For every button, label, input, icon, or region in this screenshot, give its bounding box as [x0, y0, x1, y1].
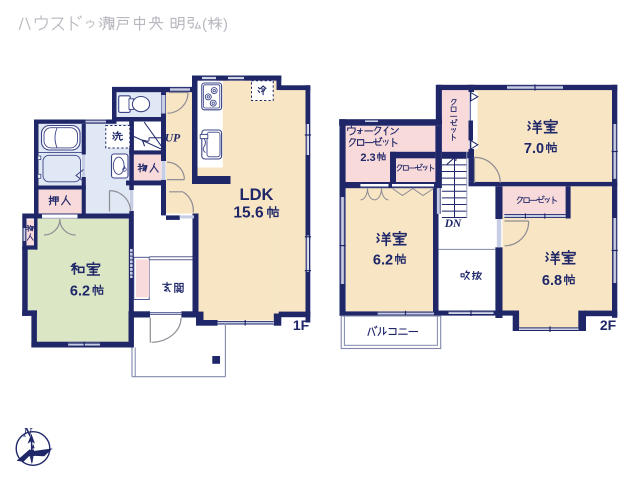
svg-text:LDK: LDK	[240, 186, 274, 204]
svg-text:7.0: 7.0	[524, 141, 544, 157]
svg-text:): )	[223, 16, 228, 33]
svg-text:2.3: 2.3	[360, 152, 375, 164]
svg-text:1F: 1F	[293, 317, 310, 333]
svg-text:6.2: 6.2	[373, 253, 393, 269]
svg-text:6.8: 6.8	[542, 273, 562, 289]
svg-text:2F: 2F	[600, 317, 617, 333]
svg-text:N: N	[22, 426, 33, 440]
svg-text:UP: UP	[165, 133, 181, 145]
svg-text:DN: DN	[444, 218, 462, 230]
svg-text:15.6: 15.6	[233, 205, 264, 222]
svg-text:(: (	[202, 16, 207, 33]
svg-text:6.2: 6.2	[70, 284, 90, 300]
